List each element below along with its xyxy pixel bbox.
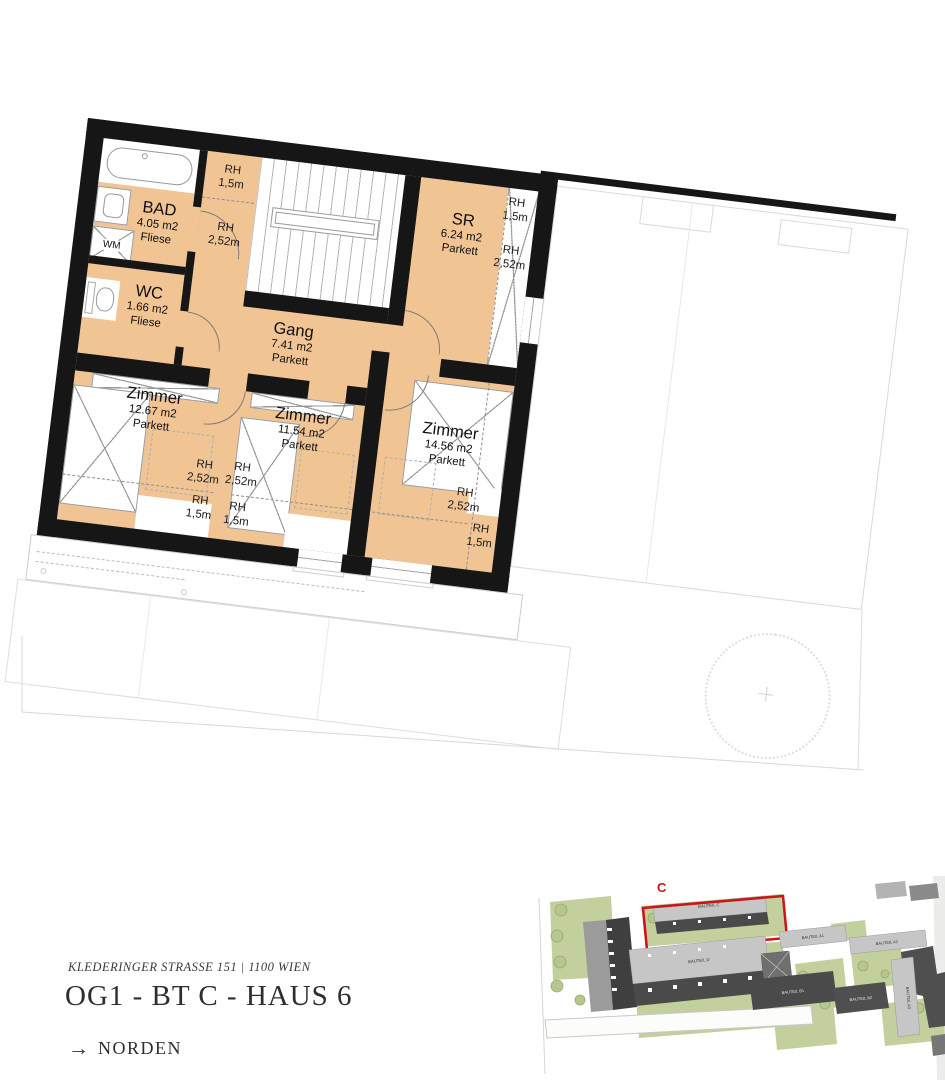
room-label-sr: SR 6.24 m2 Parkett xyxy=(438,209,485,260)
rh-label: RH2,52m xyxy=(186,457,221,488)
floorplan-sheet: WM xyxy=(0,0,945,1080)
washing-machine-label: WM xyxy=(101,238,122,251)
furniture-dashed xyxy=(294,448,355,514)
room-label-gang: Gang 7.41 m2 Parkett xyxy=(268,319,315,370)
page-title: OG1 - BT C - HAUS 6 xyxy=(65,980,353,1013)
rh-label: RH2,52m xyxy=(224,460,259,491)
rh-label: RH2,52m xyxy=(492,243,527,274)
wall xyxy=(345,386,367,406)
room-label-zimmer1: Zimmer 12.67 m2 Parkett xyxy=(122,384,183,437)
rh-label: RH1,5m xyxy=(502,196,531,227)
washbasin-bowl xyxy=(102,193,125,219)
room-label-zimmer3: Zimmer 14.56 m2 Parkett xyxy=(418,419,479,472)
building-a1: BAUTEIL A1 xyxy=(779,925,847,948)
room-label-zimmer2: Zimmer 11.54 m2 Parkett xyxy=(271,404,332,457)
rh-label: RH2,52m xyxy=(447,485,482,516)
site-plan: BAUTEIL C C BAUTEIL D BAUTEIL B1 xyxy=(533,876,945,1080)
highlight-label: C xyxy=(657,880,667,895)
north-arrow-icon: → xyxy=(68,1036,89,1061)
rh-label: RH1,5m xyxy=(465,522,494,553)
floor-plan: WM xyxy=(37,118,559,593)
rh-label: RH1,5m xyxy=(217,163,246,194)
north-indicator: → NORDEN xyxy=(68,1036,182,1061)
north-label: NORDEN xyxy=(98,1038,182,1059)
rh-label: RH1,5m xyxy=(185,493,214,524)
room-label-bad: BAD 4.05 m2 Fliese xyxy=(134,198,181,249)
garage-row xyxy=(583,917,637,1012)
project-address: KLEDERINGER STRASSE 151 | 1100 WIEN xyxy=(68,960,311,975)
rh-label: RH2,52m xyxy=(207,220,242,251)
site-plot-line xyxy=(539,898,545,1074)
room-label-wc: WC 1.66 m2 Fliese xyxy=(124,281,171,332)
rh-label: RH1,5m xyxy=(222,500,251,531)
